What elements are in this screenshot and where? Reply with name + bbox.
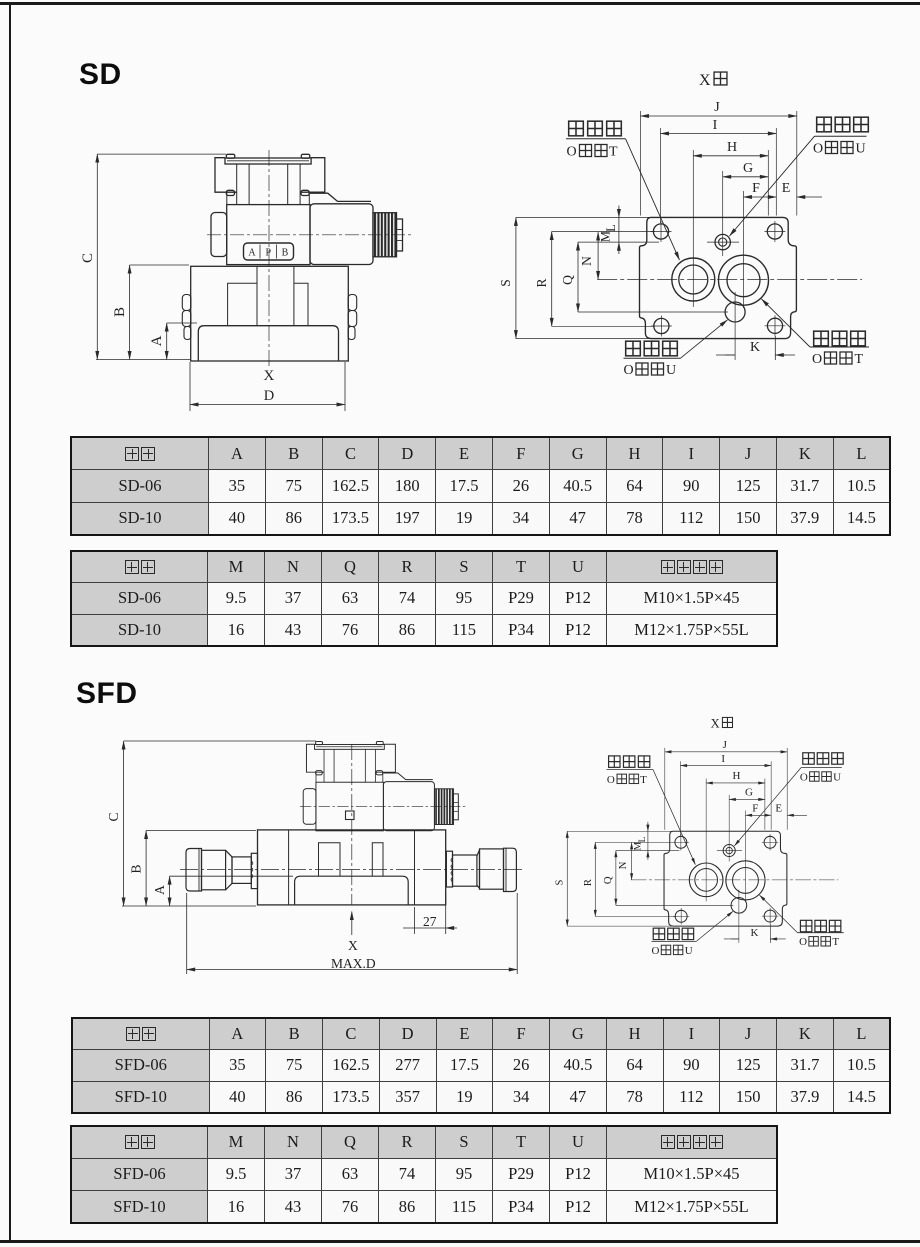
svg-text:A: A [149, 335, 165, 346]
svg-text:G: G [743, 161, 753, 176]
svg-text:U: U [666, 363, 676, 378]
svg-text:O: O [813, 142, 823, 157]
svg-text:P: P [266, 248, 272, 259]
svg-text:J: J [714, 100, 720, 115]
svg-text:B: B [112, 307, 128, 317]
svg-text:L: L [604, 224, 618, 232]
svg-text:A: A [152, 885, 167, 895]
svg-text:O: O [624, 363, 634, 378]
svg-text:U: U [856, 142, 866, 157]
svg-text:C: C [80, 253, 96, 263]
svg-text:A: A [248, 248, 256, 259]
svg-text:27: 27 [423, 914, 437, 929]
svg-text:B: B [282, 248, 289, 259]
svg-text:X: X [699, 72, 711, 89]
svg-text:I: I [713, 118, 718, 133]
svg-text:B: B [129, 864, 144, 873]
svg-text:X: X [264, 368, 275, 384]
svg-text:N: N [579, 256, 594, 266]
svg-text:E: E [782, 181, 791, 196]
svg-text:R: R [534, 278, 549, 287]
svg-text:X: X [348, 938, 358, 953]
svg-text:F: F [752, 181, 760, 196]
svg-text:T: T [855, 352, 864, 367]
svg-text:D: D [264, 388, 274, 404]
svg-text:O: O [812, 352, 822, 367]
svg-text:Q: Q [560, 275, 575, 285]
svg-text:S: S [498, 279, 513, 287]
svg-text:T: T [609, 145, 618, 160]
svg-text:H: H [727, 140, 737, 155]
svg-text:C: C [106, 812, 121, 821]
svg-text:K: K [750, 340, 760, 355]
svg-text:O: O [567, 145, 577, 160]
svg-text:MAX.D: MAX.D [331, 956, 376, 971]
